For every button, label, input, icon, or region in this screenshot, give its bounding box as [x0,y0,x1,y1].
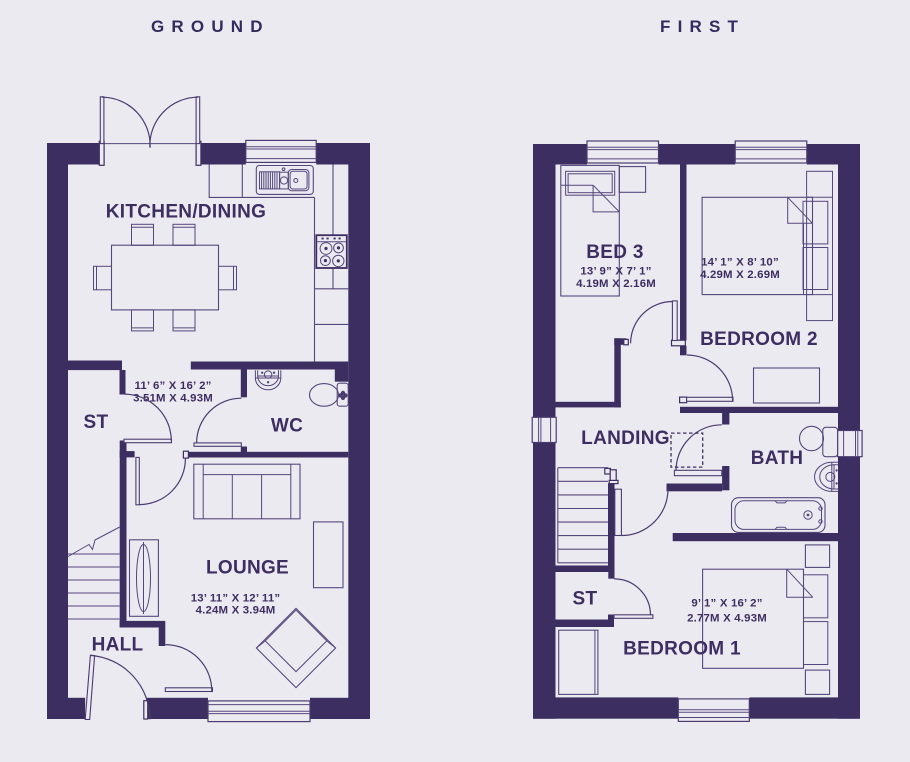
svg-text:LOUNGE: LOUNGE [206,558,289,579]
svg-text:BEDROOM 1: BEDROOM 1 [623,639,741,660]
svg-text:13’ 9” X 7’ 1”: 13’ 9” X 7’ 1” [580,266,651,278]
svg-text:9’ 1” X 16’ 2”: 9’ 1” X 16’ 2” [691,598,762,610]
svg-text:14’ 1” X 8’ 10”: 14’ 1” X 8’ 10” [701,257,779,269]
svg-text:3.51M X 4.93M: 3.51M X 4.93M [133,393,213,405]
svg-text:FIRST: FIRST [660,17,745,36]
svg-text:4.29M X 2.69M: 4.29M X 2.69M [700,269,780,281]
svg-text:ST: ST [573,589,598,610]
svg-text:13’ 11” X 12’ 11”: 13’ 11” X 12’ 11” [191,593,281,605]
svg-text:WC: WC [271,416,303,437]
svg-text:LANDING: LANDING [581,428,670,449]
svg-text:4.24M X 3.94M: 4.24M X 3.94M [196,605,276,617]
svg-text:BED 3: BED 3 [586,242,643,263]
svg-text:HALL: HALL [92,635,144,656]
svg-text:BATH: BATH [751,448,804,469]
svg-text:ST: ST [84,412,109,433]
svg-text:KITCHEN/DINING: KITCHEN/DINING [106,202,266,223]
svg-text:11’ 6” X 16’ 2”: 11’ 6” X 16’ 2” [134,380,211,392]
svg-text:GROUND: GROUND [151,17,270,36]
svg-text:BEDROOM 2: BEDROOM 2 [700,329,818,350]
svg-text:4.19M X 2.16M: 4.19M X 2.16M [576,278,656,290]
svg-text:2.77M X 4.93M: 2.77M X 4.93M [687,613,767,625]
